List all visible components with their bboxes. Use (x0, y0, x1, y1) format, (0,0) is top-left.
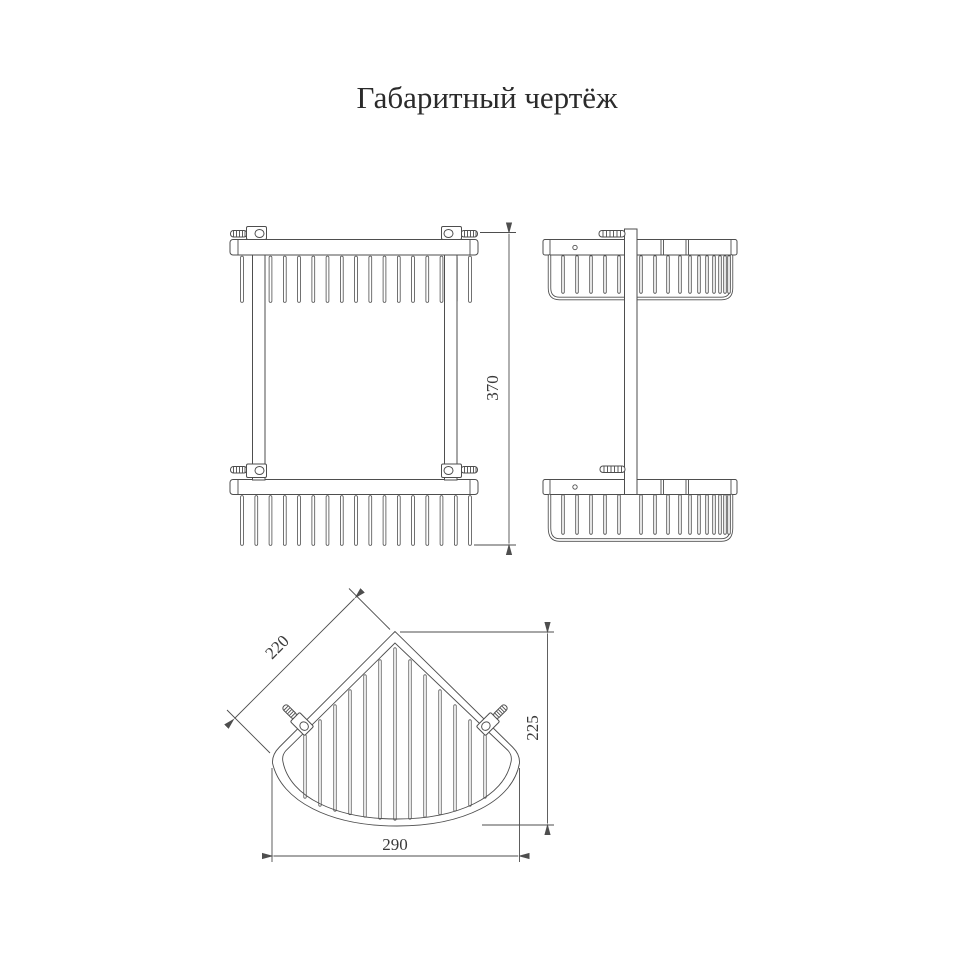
side-upper-rim (543, 240, 737, 256)
top-view-wires-fill (305, 649, 485, 819)
upper-basket-wires-fill (242, 258, 470, 302)
post-top (444, 467, 453, 475)
top-right-screw (476, 701, 510, 735)
depth-dimension: 225 (400, 632, 554, 825)
top-view-inner-rim (283, 643, 512, 819)
upper-rim-bar (230, 240, 478, 256)
post-top (444, 230, 453, 238)
front-view (230, 227, 478, 545)
screw-shaft (231, 231, 248, 238)
side-upper-wires (563, 257, 729, 292)
top-view (272, 632, 519, 827)
depth-dim-label: 225 (523, 715, 542, 741)
width-dim-label: 290 (382, 835, 408, 854)
upper-left-mount (231, 227, 267, 240)
lower-basket-wires-fill (242, 497, 470, 544)
edge-dim-label: 220 (261, 631, 292, 662)
upper-right-mount (442, 227, 478, 240)
drawing-page: Габаритный чертёж (0, 0, 970, 970)
screw-shaft (461, 467, 478, 474)
side-lower-wires (563, 496, 729, 533)
height-dim-label: 370 (483, 375, 502, 401)
lower-left-mount (231, 464, 267, 478)
right-post (445, 255, 458, 480)
screw-threads (495, 706, 506, 717)
post-top (255, 230, 264, 238)
lower-rim-bar (230, 480, 478, 495)
side-upper-wires-fill (563, 257, 729, 292)
screw-shaft (461, 231, 478, 238)
height-dimension: 370 (474, 233, 516, 546)
screw-threads (284, 706, 295, 717)
side-post (625, 229, 638, 495)
screw-shaft (231, 467, 248, 474)
page-title: Габаритный чертёж (356, 80, 618, 115)
side-lower-rim (543, 480, 737, 495)
side-upper-screw (599, 231, 625, 238)
side-lower-wires-fill (563, 496, 729, 533)
dimension-drawing: Габаритный чертёж (0, 0, 970, 970)
side-view (543, 229, 737, 540)
left-post (253, 255, 266, 480)
post-top (255, 467, 264, 475)
lower-right-mount (442, 464, 478, 478)
side-lower-screw (600, 466, 625, 473)
